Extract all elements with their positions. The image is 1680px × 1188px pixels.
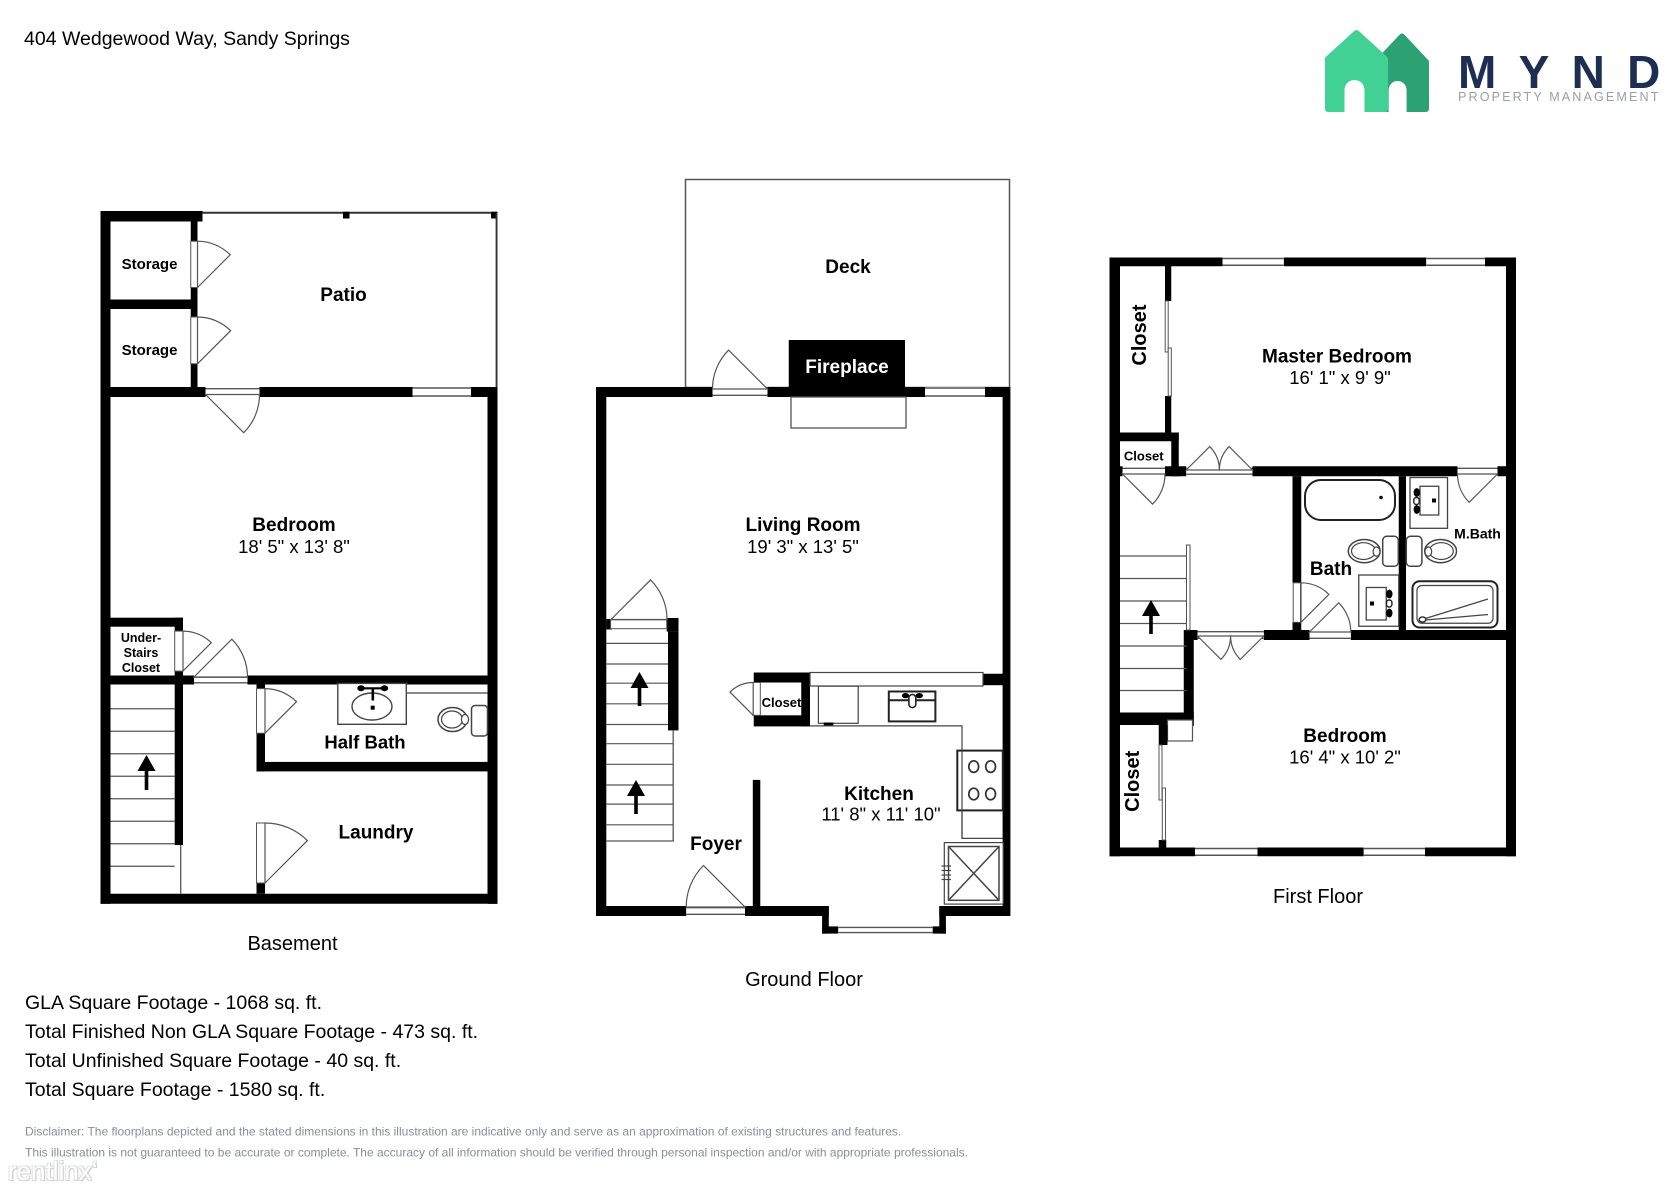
svg-text:This illustration is not guara: This illustration is not guaranteed to b… (25, 1146, 968, 1160)
svg-text:Under-: Under- (121, 631, 161, 645)
svg-text:Closet: Closet (1122, 750, 1144, 811)
svg-text:Closet: Closet (762, 695, 802, 710)
svg-text:11' 8" x 11' 10": 11' 8" x 11' 10" (821, 804, 940, 825)
svg-text:Storage: Storage (122, 256, 178, 273)
svg-text:Total Finished Non GLA Square: Total Finished Non GLA Square Footage - … (25, 1021, 478, 1043)
svg-text:18' 5" x 13' 8": 18' 5" x 13' 8" (238, 536, 350, 557)
svg-text:GLA Square Footage - 1068 sq.: GLA Square Footage - 1068 sq. ft. (25, 992, 322, 1014)
svg-text:Closet: Closet (122, 661, 161, 675)
svg-text:Bedroom: Bedroom (252, 515, 335, 536)
svg-text:M.Bath: M.Bath (1454, 526, 1501, 542)
svg-text:Basement: Basement (247, 933, 337, 955)
svg-text:Living Room: Living Room (745, 515, 860, 536)
svg-text:Kitchen: Kitchen (844, 784, 914, 805)
svg-text:Closet: Closet (1124, 449, 1164, 464)
svg-text:Bedroom: Bedroom (1303, 726, 1386, 747)
svg-text:Patio: Patio (320, 285, 366, 306)
svg-text:PROPERTY MANAGEMENT: PROPERTY MANAGEMENT (1458, 90, 1660, 104)
svg-text:Deck: Deck (825, 257, 871, 278)
svg-text:Disclaimer: The floorplans dep: Disclaimer: The floorplans depicted and … (25, 1125, 901, 1139)
svg-text:Bath: Bath (1310, 559, 1352, 580)
svg-text:19' 3" x 13' 5": 19' 3" x 13' 5" (747, 536, 859, 557)
svg-text:404 Wedgewood Way, Sandy Sprin: 404 Wedgewood Way, Sandy Springs (24, 28, 350, 50)
svg-text:Fireplace: Fireplace (805, 357, 888, 378)
svg-text:Ground Floor: Ground Floor (745, 969, 863, 991)
svg-text:16' 1" x 9' 9": 16' 1" x 9' 9" (1289, 367, 1390, 388)
svg-text:Master Bedroom: Master Bedroom (1262, 347, 1412, 368)
svg-text:Stairs: Stairs (124, 646, 159, 660)
svg-text:Total Unfinished Square Footag: Total Unfinished Square Footage - 40 sq.… (25, 1050, 401, 1072)
svg-text:Half Bath: Half Bath (324, 732, 405, 753)
svg-text:Foyer: Foyer (690, 834, 742, 855)
svg-text:Laundry: Laundry (339, 823, 414, 844)
svg-text:Storage: Storage (122, 342, 178, 359)
svg-text:First Floor: First Floor (1273, 886, 1363, 908)
svg-text:16' 4" x 10' 2": 16' 4" x 10' 2" (1289, 747, 1401, 768)
svg-text:Closet: Closet (1129, 304, 1151, 365)
svg-text:Total Square Footage - 1580 sq: Total Square Footage - 1580 sq. ft. (25, 1079, 325, 1101)
